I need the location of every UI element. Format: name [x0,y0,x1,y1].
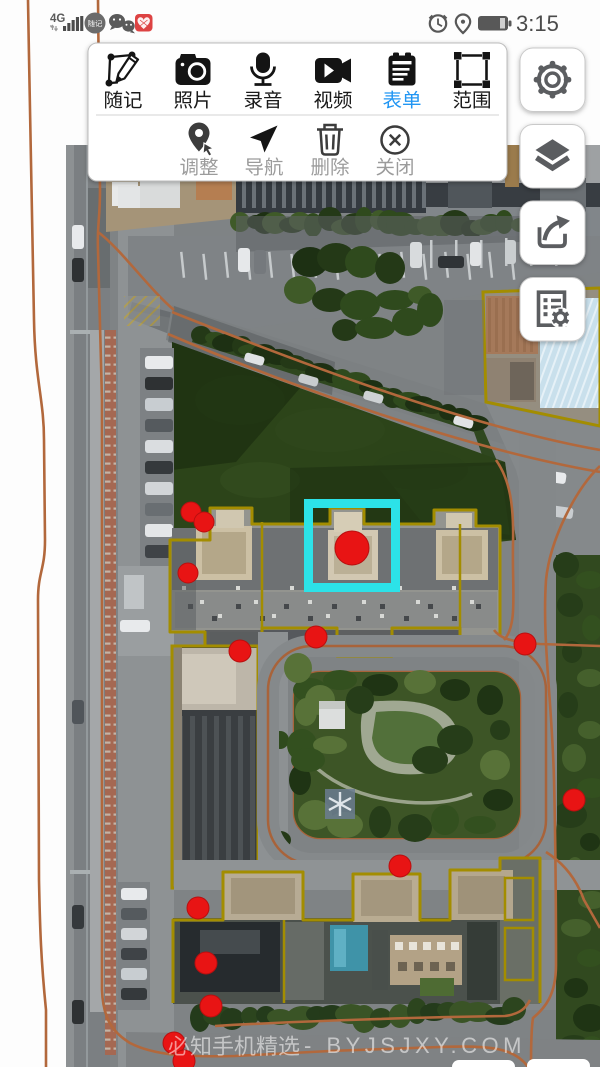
svg-text:4G: 4G [50,13,65,25]
svg-text:- BYJSJXY.COM: - BYJSJXY.COM [304,1033,526,1058]
svg-text:3:15: 3:15 [516,11,559,36]
